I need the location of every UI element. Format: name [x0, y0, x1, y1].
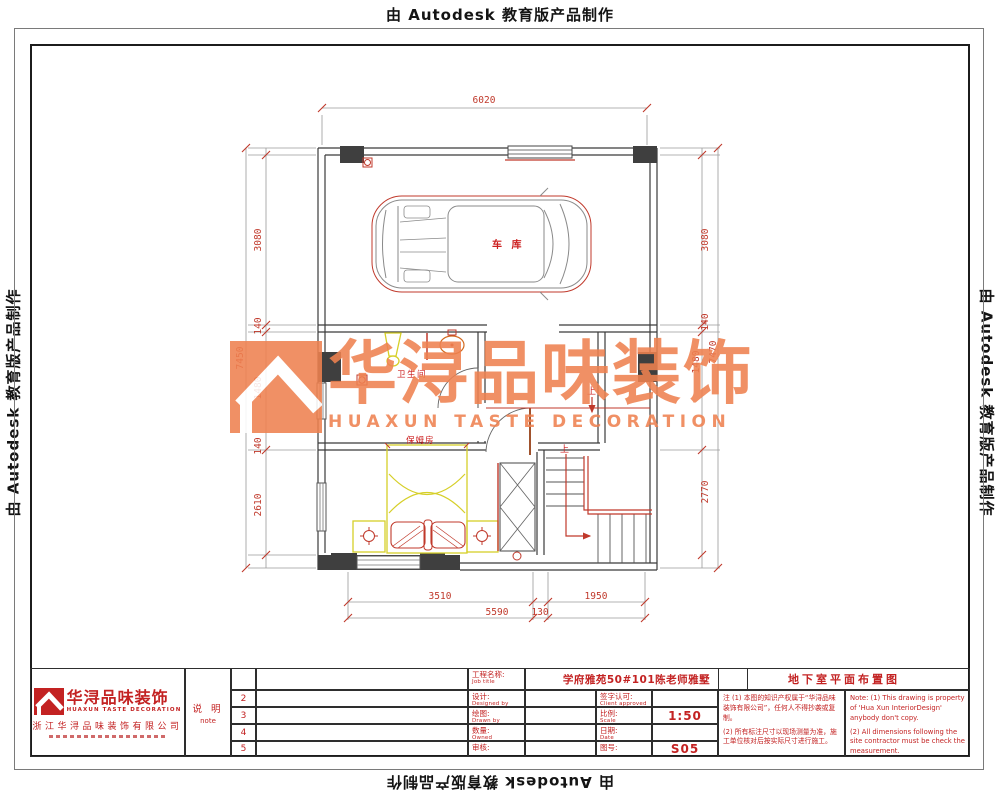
check-label: 审核: — [468, 741, 525, 757]
bathroom-label: 卫生间 — [397, 369, 427, 380]
sheet-number-label: 图号: — [596, 741, 652, 757]
designed-by-label: 设计: Designed by — [468, 690, 525, 707]
garage-label: 车 库 — [492, 238, 524, 251]
stairs — [486, 397, 652, 563]
note-column: 说 明 note — [185, 668, 231, 757]
stairs-up-label-2: 上 — [560, 444, 569, 455]
company-name: 浙江华浔品味装饰有限公司 — [32, 719, 182, 732]
dim-right-total: 7470 — [708, 340, 719, 363]
project-name: 学府雅苑50#101陈老师雅墅 — [525, 668, 748, 690]
scale-label: 比例: Scale — [596, 707, 652, 724]
quantity-value — [525, 724, 596, 741]
cad-drawing-page: { "banner": { "autodesk": "由 Autodesk 教育… — [0, 0, 1000, 800]
quantity-label: 数量: Owned — [468, 724, 525, 741]
note-cn-2: (2) 所有标注尺寸以现场测量为准，施工单位核对后按实际尺寸进行施工。 — [723, 728, 840, 748]
job-title-label-cn: 工程名称: — [472, 670, 524, 679]
dim-bottom1-1: 1950 — [585, 591, 608, 602]
client-approved-cn: 签字认可: — [600, 692, 651, 701]
columns — [318, 146, 657, 570]
drawing-title: 地下室平面布置图 — [718, 668, 970, 690]
date-value — [652, 724, 718, 741]
titleblock-logo-cell: 华浔品味装饰 HUAXUN TASTE DECORATION 浙江华浔品味装饰有… — [30, 668, 185, 757]
job-title-label-en: Job title — [472, 679, 524, 685]
designed-by-value — [525, 690, 596, 707]
titleblock-logo-en: HUAXUN TASTE DECORATION — [67, 707, 182, 713]
note-en-1: Note: (1) This drawing is property of 'H… — [850, 694, 965, 724]
job-title-label: 工程名称: Job title — [468, 668, 525, 690]
wall-openings — [476, 323, 559, 452]
check-value — [525, 741, 596, 757]
row-number-3: 3 — [231, 707, 256, 724]
check-cn: 审核: — [472, 743, 524, 752]
note-label-cn: 说 明 — [192, 701, 223, 715]
dim-bottom1-0: 3510 — [429, 591, 452, 602]
car — [372, 188, 591, 300]
dim-left-3: 140 — [253, 437, 264, 454]
note-cn-1: 注 (1) 本图的知识产权属于“华浔品味装饰有限公司”，任何人不得抄袭或复制。 — [723, 694, 840, 724]
dim-bottom2-0: 5590 — [486, 607, 509, 618]
drawn-by-cn: 绘图: — [472, 709, 524, 718]
wardrobe — [498, 463, 535, 560]
bed — [385, 443, 469, 553]
notes-english: Note: (1) This drawing is property of 'H… — [845, 690, 970, 757]
dim-right-3: 2770 — [700, 480, 711, 503]
client-approved-label: 签字认可: Client approved — [596, 690, 652, 707]
dim-right-1: 140 — [700, 313, 711, 330]
note-en-2: (2) All dimensions following the site co… — [850, 728, 965, 757]
designed-by-cn: 设计: — [472, 692, 524, 701]
dim-right-2: 1480 — [691, 350, 702, 373]
dim-left-total: 7450 — [235, 346, 246, 369]
drawn-by-value — [525, 707, 596, 724]
drawn-by-label: 绘图: Drawn by — [468, 707, 525, 724]
row-number-2: 2 — [231, 690, 256, 707]
revision-row-5 — [256, 741, 468, 757]
revision-row-3 — [256, 707, 468, 724]
dim-top: 6020 — [473, 95, 496, 106]
revision-row-2 — [256, 690, 468, 707]
notes-chinese: 注 (1) 本图的知识产权属于“华浔品味装饰有限公司”，任何人不得抄袭或复制。 … — [718, 690, 845, 757]
revision-row-4 — [256, 724, 468, 741]
note-label-en: note — [200, 717, 216, 725]
company-address-line — [49, 735, 167, 738]
sheet-number-cn: 图号: — [600, 743, 651, 752]
huaxun-logo-icon-small — [34, 688, 64, 715]
dim-bottom2-1: 130 — [531, 607, 548, 618]
dim-left-0: 3080 — [253, 228, 264, 251]
row-number-4: 4 — [231, 724, 256, 741]
dim-right-0: 3080 — [700, 228, 711, 251]
dim-left-1: 140 — [253, 317, 264, 334]
row-number-blank — [231, 668, 256, 690]
title-block: 华浔品味装饰 HUAXUN TASTE DECORATION 浙江华浔品味装饰有… — [30, 668, 970, 757]
scale-cn: 比例: — [600, 709, 651, 718]
windows — [317, 146, 575, 569]
dim-left-2: 1480 — [253, 376, 264, 399]
quantity-cn: 数量: — [472, 726, 524, 735]
dim-left-4: 2610 — [253, 493, 264, 516]
maid-room-label: 保姆房 — [406, 435, 435, 446]
stairs-up-label-1: 上 — [587, 386, 596, 397]
row-number-5: 5 — [231, 741, 256, 757]
walls — [318, 148, 657, 570]
date-label: 日期: Date — [596, 724, 652, 741]
date-cn: 日期: — [600, 726, 651, 735]
revision-row-1 — [256, 668, 468, 690]
titleblock-logo-cn: 华浔品味装饰 — [67, 690, 182, 706]
sheet-number-value: S05 — [652, 741, 718, 757]
scale-value: 1:50 — [652, 707, 718, 724]
client-approved-value — [652, 690, 718, 707]
